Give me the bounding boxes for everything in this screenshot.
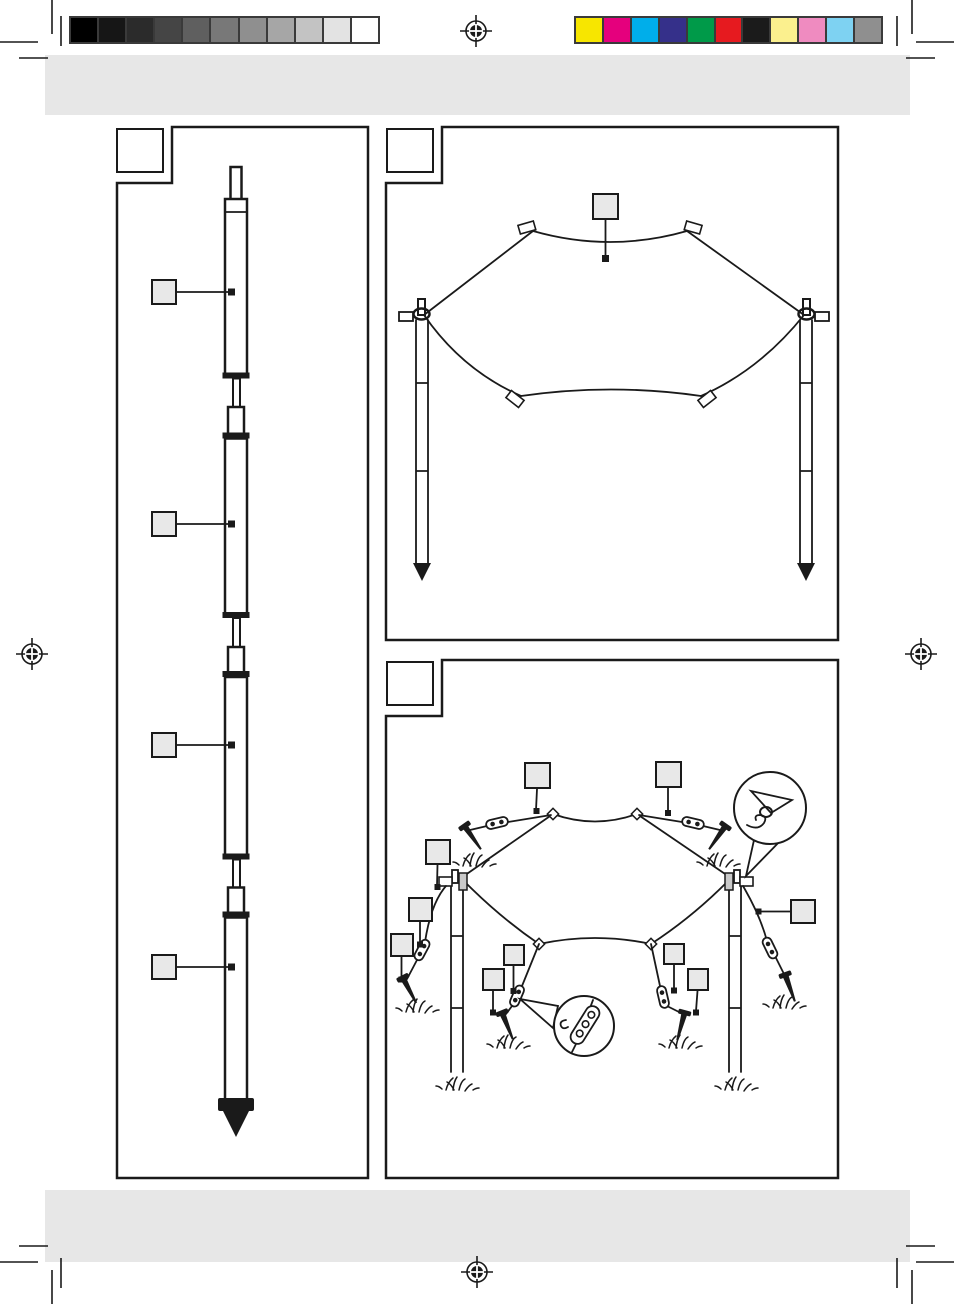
left-pole-small — [439, 870, 467, 1072]
magnifier-balloon-tensioner — [520, 996, 614, 1056]
crop-marks — [0, 0, 954, 1304]
pole-segment-3 — [225, 677, 247, 855]
pole-assembly-diagram — [177, 167, 254, 1137]
registration-mark-left — [16, 638, 48, 670]
pole-segment-1 — [225, 199, 247, 374]
diagram-layer — [0, 0, 954, 1304]
right-pole-small — [725, 870, 753, 1072]
right-pole — [797, 299, 829, 581]
leader-endpoint — [602, 255, 609, 262]
callout-setup-tensioner-left — [408, 897, 433, 922]
tarp-overview-diagram — [399, 220, 829, 581]
tarp-setup-diagram — [396, 772, 806, 1091]
callout-setup-peg-left — [390, 933, 414, 957]
callout-setup-rope-left — [425, 839, 451, 865]
callout-setup-top-right — [655, 761, 682, 788]
tarp-outline-small — [461, 808, 731, 949]
callout-setup-peg-front-left — [482, 968, 505, 991]
instruction-sheet-page — [0, 0, 954, 1304]
callout-pole-segment-1 — [151, 279, 177, 305]
tarp-outline — [424, 231, 804, 396]
panel3-label-box — [386, 661, 434, 706]
registration-mark-bottom — [461, 1256, 493, 1288]
rope-tensioner-icons — [413, 816, 779, 1009]
tarp-corner-tabs — [506, 221, 716, 407]
pole-ground-spike — [218, 1098, 254, 1111]
callout-setup-rope-right — [790, 899, 816, 924]
callout-pole-segment-2 — [151, 511, 177, 537]
callout-leader-lines — [177, 292, 231, 967]
pole-segment-4 — [225, 918, 247, 1100]
callout-tarp-canopy — [592, 193, 619, 220]
registration-mark-top — [460, 15, 492, 47]
callout-setup-peg-front-right — [687, 968, 709, 991]
callout-setup-top-left — [524, 762, 551, 789]
callout-setup-tensioner-front-right — [663, 943, 685, 965]
pole-tip — [231, 167, 242, 201]
left-pole — [399, 299, 431, 581]
callout-pole-segment-4 — [151, 954, 177, 980]
registration-mark-right — [905, 638, 937, 670]
magnifier-balloon-knot — [734, 772, 806, 876]
panel2-label-box — [386, 128, 434, 173]
callout-pole-segment-3 — [151, 732, 177, 758]
callout-setup-tensioner-front-left — [503, 944, 525, 966]
panel1-label-box — [116, 128, 164, 173]
